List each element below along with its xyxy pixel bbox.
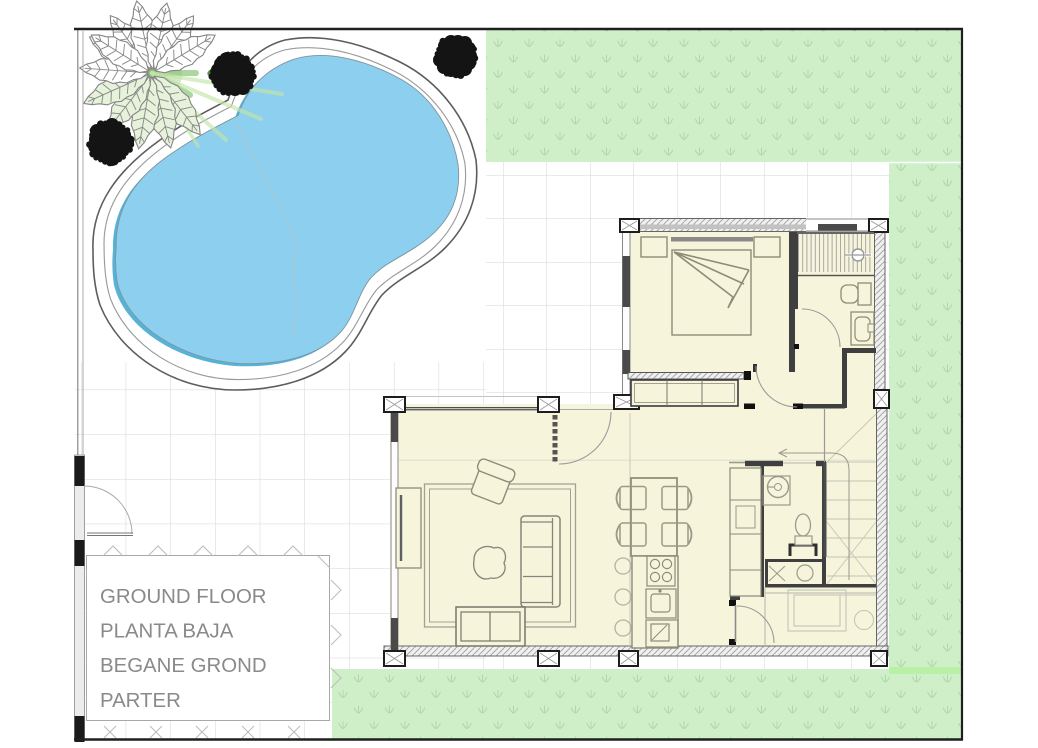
svg-text:PARTER: PARTER [100,690,181,712]
svg-text:PLANTA BAJA: PLANTA BAJA [100,621,234,643]
svg-text:BEGANE GROND: BEGANE GROND [100,655,267,677]
svg-text:GROUND FLOOR: GROUND FLOOR [100,586,267,608]
